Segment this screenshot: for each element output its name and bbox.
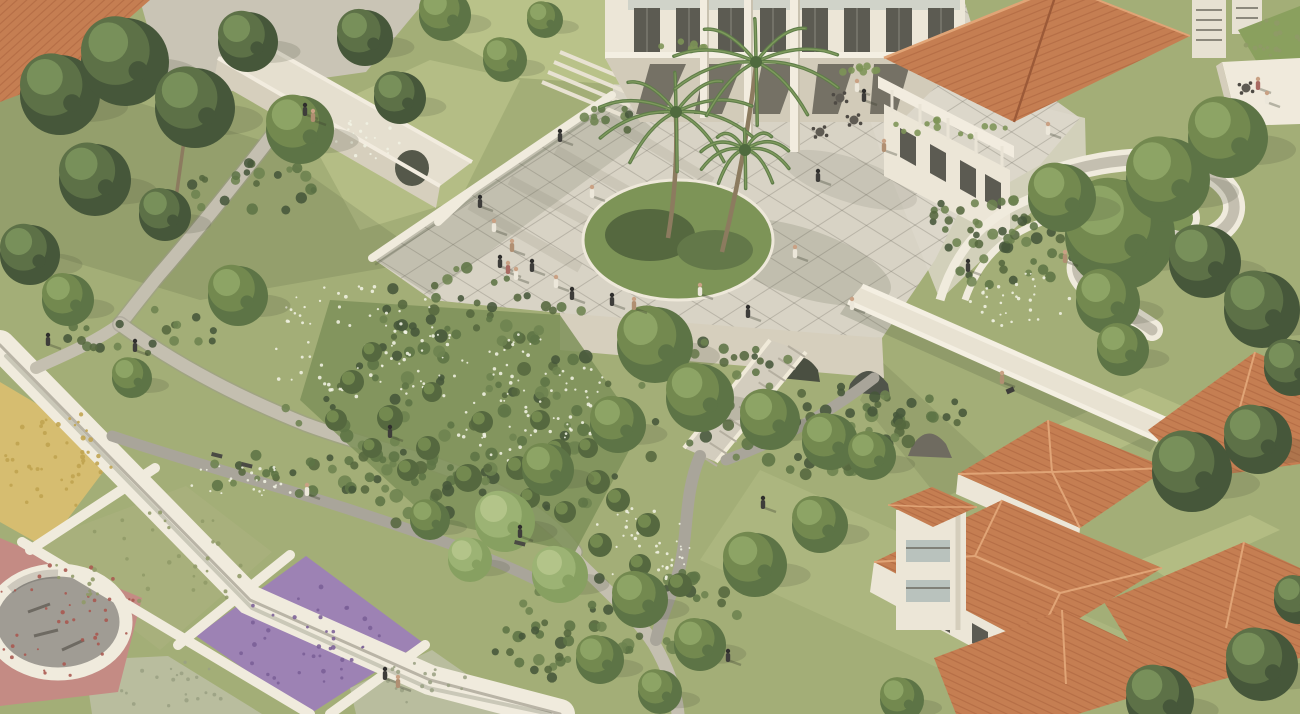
shrub bbox=[800, 468, 812, 480]
flower-speckle bbox=[325, 630, 328, 633]
shrub bbox=[372, 374, 379, 381]
flower-speckle bbox=[323, 680, 326, 683]
flower-speckle bbox=[550, 389, 553, 392]
flower-speckle bbox=[400, 388, 402, 390]
flower-speckle bbox=[522, 351, 524, 353]
flower-speckle bbox=[332, 630, 336, 634]
flower-speckle bbox=[1269, 54, 1272, 57]
flower-speckle bbox=[490, 453, 493, 456]
flower-speckle bbox=[294, 312, 297, 315]
flower-speckle bbox=[299, 371, 302, 374]
shrub bbox=[251, 450, 262, 461]
flower-speckle bbox=[1262, 47, 1265, 50]
topiary-ball bbox=[422, 382, 442, 402]
flower-speckle bbox=[446, 343, 450, 347]
shrub bbox=[400, 449, 407, 456]
flower-speckle bbox=[1010, 321, 1013, 324]
shrub bbox=[1009, 229, 1016, 236]
flower-speckle bbox=[1277, 30, 1282, 35]
flower-speckle bbox=[57, 620, 60, 623]
flower-speckle bbox=[192, 588, 196, 592]
shrub bbox=[401, 371, 415, 385]
topiary-ball bbox=[454, 464, 482, 492]
flower-speckle bbox=[428, 680, 432, 684]
flower-speckle bbox=[507, 393, 509, 395]
shrub bbox=[517, 362, 531, 376]
shrub bbox=[869, 391, 880, 402]
flower-speckle bbox=[309, 323, 311, 325]
flower-speckle bbox=[309, 355, 312, 358]
flower-speckle bbox=[463, 675, 467, 679]
flower-speckle bbox=[176, 674, 178, 676]
shrub bbox=[519, 633, 526, 640]
flower-speckle bbox=[101, 653, 104, 656]
shrub bbox=[306, 457, 315, 466]
shrub bbox=[591, 106, 597, 112]
flower-speckle bbox=[11, 458, 15, 462]
flower-speckle bbox=[183, 661, 186, 664]
flower-speckle bbox=[122, 537, 126, 541]
flower-speckle bbox=[158, 510, 162, 514]
flower-speckle bbox=[312, 654, 316, 658]
flower-speckle bbox=[527, 414, 530, 417]
flower-speckle bbox=[503, 400, 505, 402]
shrub bbox=[444, 326, 450, 332]
shrub bbox=[717, 599, 726, 608]
shrub bbox=[596, 622, 606, 632]
flower-speckle bbox=[417, 370, 420, 373]
shrub bbox=[1030, 222, 1038, 230]
flower-speckle bbox=[683, 563, 685, 565]
shrub bbox=[197, 203, 205, 211]
flower-speckle bbox=[65, 487, 68, 490]
flower-speckle bbox=[1059, 312, 1062, 315]
shrub bbox=[601, 116, 610, 125]
flower-speckle bbox=[3, 648, 6, 651]
shrub bbox=[418, 342, 431, 355]
flower-speckle bbox=[155, 676, 158, 679]
flower-speckle bbox=[530, 434, 532, 436]
shrub bbox=[286, 166, 292, 172]
flower-speckle bbox=[482, 433, 486, 437]
flower-speckle bbox=[448, 337, 450, 339]
flower-speckle bbox=[617, 514, 619, 516]
flower-speckle bbox=[438, 375, 440, 377]
flower-speckle bbox=[1003, 126, 1008, 131]
flower-speckle bbox=[671, 558, 674, 561]
shrub bbox=[752, 368, 760, 376]
shrub bbox=[1030, 258, 1037, 265]
flower-speckle bbox=[290, 308, 293, 311]
flower-speckle bbox=[615, 546, 617, 548]
flower-speckle bbox=[431, 326, 433, 328]
shrub bbox=[428, 304, 439, 315]
shrub bbox=[509, 433, 517, 441]
shrub bbox=[365, 472, 375, 482]
flower-speckle bbox=[1002, 294, 1004, 296]
flower-speckle bbox=[657, 568, 660, 571]
flower-speckle bbox=[204, 691, 207, 694]
shrub bbox=[1017, 216, 1027, 226]
flower-speckle bbox=[1033, 293, 1035, 295]
flower-speckle bbox=[321, 669, 326, 674]
shrub bbox=[540, 377, 550, 387]
flower-speckle bbox=[43, 670, 45, 672]
shrub bbox=[867, 406, 877, 416]
flower-speckle bbox=[211, 540, 214, 543]
flower-speckle bbox=[146, 587, 150, 591]
shrub bbox=[956, 206, 965, 215]
shrub bbox=[391, 334, 397, 340]
shrub bbox=[845, 408, 855, 418]
flower-speckle bbox=[77, 464, 81, 468]
flower-speckle bbox=[503, 349, 505, 351]
shrub bbox=[525, 607, 533, 615]
flower-speckle bbox=[99, 470, 103, 474]
flower-speckle bbox=[266, 628, 270, 632]
flower-speckle bbox=[1042, 276, 1045, 279]
shrub bbox=[90, 343, 98, 351]
flower-speckle bbox=[1253, 46, 1258, 51]
shrub bbox=[210, 459, 219, 468]
site-plan-rendering bbox=[0, 0, 1300, 714]
flower-speckle bbox=[424, 298, 427, 301]
shrub bbox=[194, 337, 202, 345]
shrub bbox=[577, 423, 590, 436]
shrub bbox=[244, 158, 254, 168]
flower-speckle bbox=[91, 577, 95, 581]
flower-speckle bbox=[37, 648, 39, 650]
shrub bbox=[410, 327, 419, 336]
flower-speckle bbox=[371, 290, 374, 293]
flower-speckle bbox=[598, 381, 601, 384]
flower-speckle bbox=[43, 671, 46, 674]
flower-speckle bbox=[71, 474, 75, 478]
shrub bbox=[524, 292, 531, 299]
shrub bbox=[253, 180, 260, 187]
flower-speckle bbox=[499, 372, 503, 376]
flower-speckle bbox=[252, 488, 255, 491]
shrub bbox=[603, 605, 613, 615]
flower-speckle bbox=[85, 429, 88, 432]
flower-speckle bbox=[77, 421, 80, 424]
shrub bbox=[997, 198, 1005, 206]
shrub bbox=[979, 254, 988, 263]
flower-speckle bbox=[109, 466, 112, 469]
shrub bbox=[973, 218, 980, 225]
flower-speckle bbox=[93, 636, 97, 640]
flower-speckle bbox=[320, 363, 323, 366]
shrub bbox=[210, 327, 217, 334]
shrub bbox=[483, 464, 492, 473]
shrub bbox=[487, 302, 497, 312]
flower-speckle bbox=[347, 128, 349, 130]
shrub bbox=[906, 398, 916, 408]
flower-speckle bbox=[360, 287, 363, 290]
flower-speckle bbox=[365, 136, 367, 138]
shrub bbox=[951, 398, 958, 405]
flower-speckle bbox=[69, 604, 71, 606]
flower-speckle bbox=[420, 339, 423, 342]
shrub bbox=[232, 171, 241, 180]
flower-speckle bbox=[230, 477, 233, 480]
flower-speckle bbox=[80, 450, 84, 454]
shrub bbox=[1031, 232, 1043, 244]
flower-speckle bbox=[661, 565, 663, 567]
flower-speckle bbox=[36, 467, 40, 471]
shrub bbox=[999, 265, 1008, 274]
flower-speckle bbox=[375, 157, 377, 159]
flower-speckle bbox=[601, 376, 603, 378]
flower-speckle bbox=[64, 568, 68, 572]
flower-speckle bbox=[447, 684, 450, 687]
shrub bbox=[419, 473, 426, 480]
shrub bbox=[495, 382, 502, 389]
shrub bbox=[588, 601, 597, 610]
shrub bbox=[541, 301, 551, 311]
flower-speckle bbox=[79, 412, 83, 416]
flower-speckle bbox=[473, 402, 475, 404]
flower-speckle bbox=[465, 429, 467, 431]
shrub bbox=[390, 394, 401, 405]
flower-speckle bbox=[224, 589, 228, 593]
shrub bbox=[542, 501, 550, 509]
flower-speckle bbox=[11, 644, 15, 648]
flower-speckle bbox=[332, 637, 336, 641]
flower-speckle bbox=[319, 585, 324, 590]
flower-speckle bbox=[15, 634, 18, 637]
flower-speckle bbox=[220, 492, 222, 494]
flower-speckle bbox=[60, 478, 63, 481]
flower-speckle bbox=[666, 552, 669, 555]
flower-speckle bbox=[626, 520, 628, 522]
shrub bbox=[473, 324, 480, 331]
shrub bbox=[431, 282, 439, 290]
flower-speckle bbox=[413, 662, 416, 665]
flower-speckle bbox=[4, 454, 7, 457]
flower-speckle bbox=[319, 300, 321, 302]
flower-speckle bbox=[529, 343, 531, 345]
flower-speckle bbox=[80, 454, 85, 459]
flower-speckle bbox=[318, 654, 321, 657]
flower-speckle bbox=[524, 406, 527, 409]
flower-speckle bbox=[25, 500, 29, 504]
shrub bbox=[453, 266, 459, 272]
shrub bbox=[442, 274, 452, 284]
shrub bbox=[621, 106, 627, 112]
shrub bbox=[998, 227, 1007, 236]
shrub bbox=[580, 113, 590, 123]
flower-speckle bbox=[612, 573, 614, 575]
flower-speckle bbox=[344, 295, 348, 299]
shrub bbox=[373, 475, 381, 483]
flower-speckle bbox=[263, 489, 265, 491]
flower-speckle bbox=[96, 454, 100, 458]
shrub bbox=[292, 163, 302, 173]
shrub bbox=[281, 206, 290, 215]
flower-speckle bbox=[5, 458, 9, 462]
flower-speckle bbox=[914, 130, 921, 137]
flower-speckle bbox=[61, 610, 65, 614]
flower-speckle bbox=[151, 528, 154, 531]
flower-speckle bbox=[392, 341, 396, 345]
flower-speckle bbox=[65, 620, 69, 624]
flower-speckle bbox=[378, 634, 381, 637]
flower-speckle bbox=[655, 545, 658, 548]
flower-speckle bbox=[95, 633, 98, 636]
flower-speckle bbox=[420, 684, 424, 688]
flower-speckle bbox=[517, 380, 519, 382]
shrub bbox=[393, 321, 402, 330]
flower-speckle bbox=[1028, 319, 1030, 321]
shrub bbox=[405, 399, 412, 406]
flower-speckle bbox=[402, 358, 405, 361]
flower-speckle bbox=[72, 618, 75, 621]
flower-speckle bbox=[430, 688, 434, 692]
flower-speckle bbox=[393, 666, 395, 668]
flower-speckle bbox=[495, 352, 499, 356]
flower-speckle bbox=[273, 469, 275, 471]
flower-speckle bbox=[203, 581, 207, 585]
flower-speckle bbox=[460, 687, 463, 690]
flower-speckle bbox=[590, 368, 593, 371]
flower-speckle bbox=[111, 577, 115, 581]
flower-speckle bbox=[258, 490, 261, 493]
flower-speckle bbox=[399, 322, 402, 325]
shrub bbox=[645, 451, 656, 462]
flower-speckle bbox=[318, 376, 322, 380]
flower-speckle bbox=[398, 363, 400, 365]
flower-speckle bbox=[539, 338, 541, 340]
flower-speckle bbox=[350, 658, 354, 662]
flower-speckle bbox=[549, 430, 552, 433]
shrub bbox=[199, 175, 205, 181]
shrub bbox=[766, 382, 774, 390]
shrub bbox=[751, 353, 757, 359]
flower-speckle bbox=[280, 483, 283, 486]
flower-speckle bbox=[1244, 43, 1249, 48]
flower-speckle bbox=[57, 576, 60, 579]
flower-speckle bbox=[388, 126, 391, 129]
flower-speckle bbox=[524, 410, 527, 413]
flower-speckle bbox=[381, 365, 383, 367]
flower-speckle bbox=[357, 367, 359, 369]
flower-speckle bbox=[482, 392, 486, 396]
flower-speckle bbox=[38, 575, 42, 579]
shrub bbox=[502, 392, 508, 398]
flower-speckle bbox=[201, 519, 205, 523]
flower-speckle bbox=[295, 296, 297, 298]
shrub bbox=[209, 338, 216, 345]
shrub bbox=[718, 586, 730, 598]
flower-speckle bbox=[193, 575, 196, 578]
flower-speckle bbox=[423, 672, 427, 676]
shrub bbox=[925, 394, 934, 403]
flower-speckle bbox=[164, 519, 167, 522]
flower-speckle bbox=[209, 490, 211, 492]
flower-speckle bbox=[1032, 278, 1035, 281]
flower-speckle bbox=[1068, 297, 1071, 300]
flower-speckle bbox=[92, 567, 97, 572]
flower-speckle bbox=[340, 658, 344, 662]
shrub bbox=[571, 405, 582, 416]
flower-speckle bbox=[258, 467, 261, 470]
flower-speckle bbox=[337, 292, 340, 295]
flower-speckle bbox=[500, 399, 503, 402]
flower-speckle bbox=[958, 131, 963, 136]
flower-speckle bbox=[1000, 324, 1003, 327]
flower-speckle bbox=[589, 404, 592, 407]
flower-speckle bbox=[1000, 302, 1003, 305]
flower-speckle bbox=[125, 692, 128, 695]
flower-speckle bbox=[327, 383, 331, 387]
shrub bbox=[447, 421, 454, 428]
shrub bbox=[83, 325, 89, 331]
flower-speckle bbox=[263, 637, 266, 640]
shrub bbox=[837, 388, 845, 396]
flower-speckle bbox=[348, 324, 351, 327]
shrub bbox=[945, 243, 953, 251]
flower-speckle bbox=[212, 519, 215, 522]
flower-speckle bbox=[132, 702, 136, 706]
flower-speckle bbox=[384, 351, 387, 354]
flower-speckle bbox=[679, 523, 681, 525]
shrub bbox=[192, 313, 201, 322]
flower-speckle bbox=[635, 518, 637, 520]
flower-speckle bbox=[131, 599, 134, 602]
shrub bbox=[390, 517, 401, 528]
flower-speckle bbox=[273, 486, 275, 488]
flower-speckle bbox=[405, 392, 407, 394]
topiary-ball bbox=[362, 342, 382, 362]
flower-speckle bbox=[465, 411, 468, 414]
flower-speckle bbox=[120, 689, 123, 692]
flower-speckle bbox=[206, 556, 210, 560]
flower-speckle bbox=[634, 537, 638, 541]
shrub bbox=[636, 632, 644, 640]
flower-speckle bbox=[108, 598, 112, 602]
flower-speckle bbox=[564, 388, 567, 391]
flower-speckle bbox=[387, 152, 389, 154]
flower-speckle bbox=[167, 526, 170, 529]
flower-speckle bbox=[630, 507, 633, 510]
flower-speckle bbox=[338, 305, 341, 308]
flower-speckle bbox=[481, 437, 483, 439]
flower-speckle bbox=[251, 604, 255, 608]
shrub bbox=[952, 238, 961, 247]
flower-speckle bbox=[88, 437, 93, 442]
flower-speckle bbox=[266, 673, 269, 676]
flower-speckle bbox=[64, 592, 67, 595]
flower-speckle bbox=[219, 697, 223, 701]
flower-speckle bbox=[508, 339, 511, 342]
flower-speckle bbox=[625, 510, 628, 513]
flower-speckle bbox=[359, 130, 362, 133]
shrub bbox=[491, 279, 498, 286]
shrub bbox=[187, 179, 197, 189]
flower-speckle bbox=[398, 142, 401, 145]
shrub bbox=[765, 360, 773, 368]
flower-speckle bbox=[622, 535, 624, 537]
flower-speckle bbox=[442, 357, 444, 359]
shrub bbox=[481, 477, 490, 486]
flower-speckle bbox=[74, 424, 76, 426]
flower-speckle bbox=[873, 67, 880, 74]
shrub bbox=[757, 357, 764, 364]
flower-speckle bbox=[307, 341, 310, 344]
flower-speckle bbox=[422, 382, 425, 385]
shrub bbox=[544, 666, 552, 674]
